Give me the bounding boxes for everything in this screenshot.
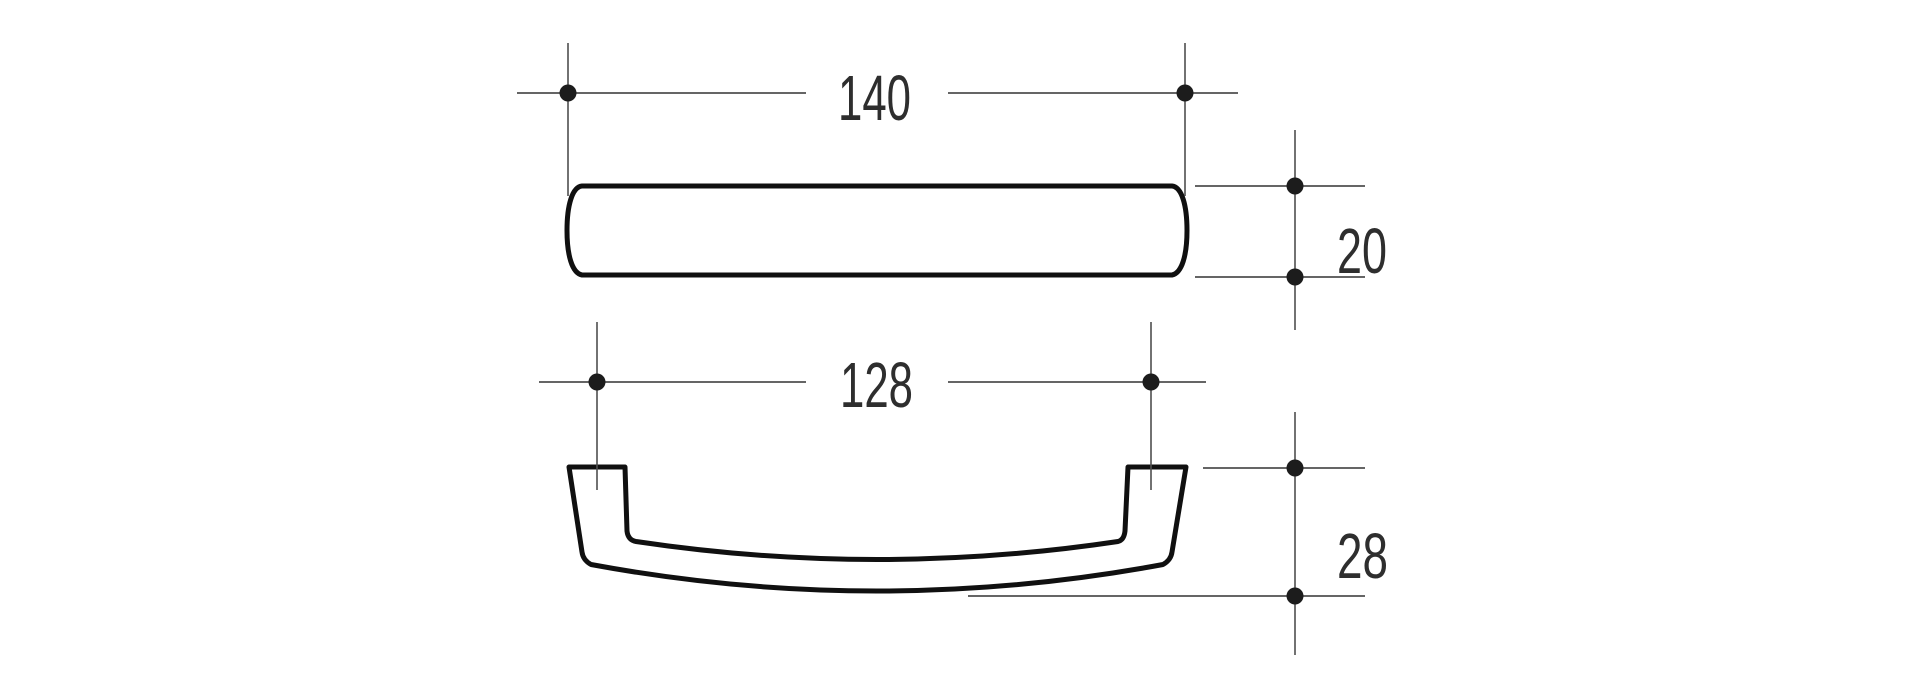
front-view xyxy=(569,467,1186,591)
dimension-dot xyxy=(1143,374,1160,391)
technical-drawing: 140 20 128 28 xyxy=(0,0,1920,700)
top-view xyxy=(567,186,1187,275)
dimension-label-140: 140 xyxy=(838,62,911,134)
dimension-dot xyxy=(1287,178,1304,195)
top-view-outline xyxy=(567,186,1187,275)
dimension-label-20: 20 xyxy=(1337,215,1387,287)
dimension-front-height: 28 xyxy=(968,412,1388,655)
dimension-label-128: 128 xyxy=(840,349,913,421)
dimension-dot xyxy=(1287,269,1304,286)
dimension-dot xyxy=(1177,85,1194,102)
dimension-dot xyxy=(560,85,577,102)
dimension-dot xyxy=(1287,588,1304,605)
drawing-canvas: 140 20 128 28 xyxy=(0,0,1920,700)
dimension-hole-spacing: 128 xyxy=(539,322,1206,490)
dimension-label-28: 28 xyxy=(1337,520,1388,592)
dimension-overall-length: 140 xyxy=(517,43,1238,196)
dimension-profile-height: 20 xyxy=(1195,130,1387,330)
dimension-dot xyxy=(589,374,606,391)
front-view-outline xyxy=(569,467,1186,591)
dimension-dot xyxy=(1287,460,1304,477)
